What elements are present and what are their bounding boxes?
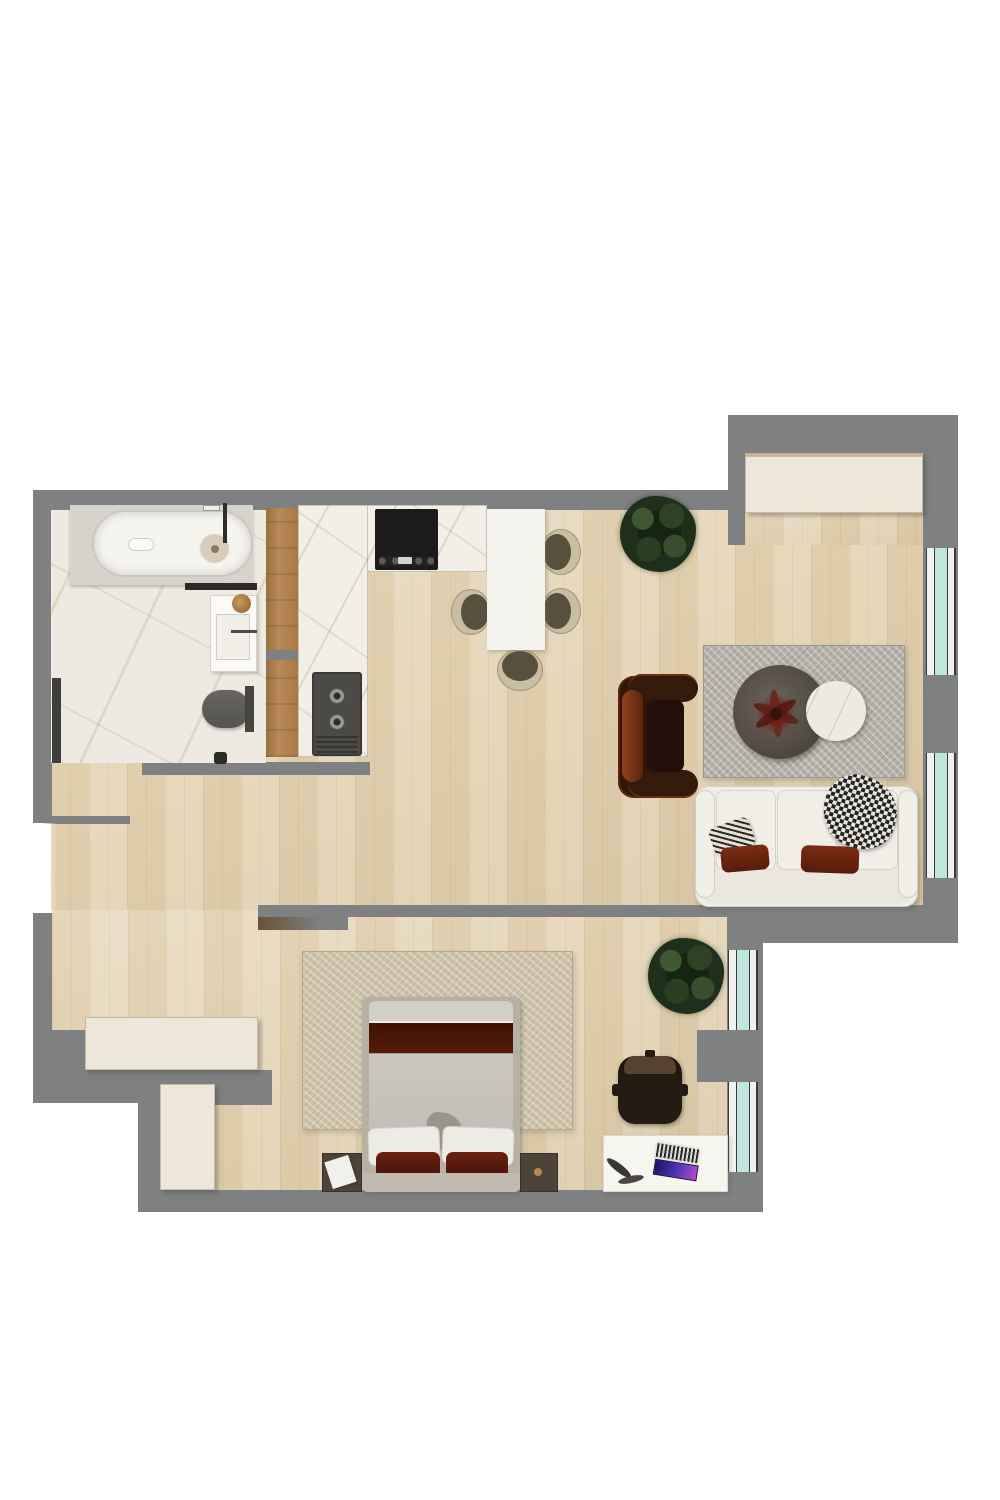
vessel-bowl [232,594,251,613]
desk-chair-top [624,1056,676,1074]
dining-chair-1-seat [543,534,571,570]
bedroom-window-lower [728,1082,758,1172]
bed-headboard [362,1173,520,1192]
rust-pillow-right [801,845,860,874]
wood-slat-partition [266,508,298,757]
bedroom-window-upper [728,950,758,1032]
wall-ac-block [697,1030,763,1082]
tub-faucet [223,503,227,543]
tub-drain-hole [211,545,219,553]
wardrobe-short [160,1084,215,1190]
desk-chair-arm-right [680,1084,688,1096]
bed-blanket-maroon [369,1023,513,1053]
wall-left-mid [33,913,52,1033]
sofa-arm-right [898,790,918,898]
wall-left-upper [33,490,52,823]
outside-bottom-left [33,1103,138,1213]
side-table-marble [806,681,866,741]
desk-chair-arm-left [612,1084,620,1096]
armchair-back-cushion [622,690,643,782]
vanity-faucet [231,630,257,633]
wall-divider-living-bedroom [258,905,742,917]
floor-plan [0,0,1000,1500]
dining-table [487,509,545,650]
dining-chair-3-seat [461,594,489,630]
wall-wardrobe-side [138,1103,162,1193]
flower-center [770,708,782,720]
sink-drain-2 [329,714,345,730]
cooktop-display [398,557,412,564]
wall-bath-kitchen-bottom [142,762,370,775]
white-sofa [695,786,918,907]
right-window-lower [926,753,956,878]
wall-bottom [138,1190,763,1212]
built-in-cabinet [745,453,923,513]
nightstand-knob [534,1168,542,1176]
floor-balcony-nook [745,513,923,545]
tub-soap [128,538,154,551]
wall-divider-end [258,917,348,930]
tub-faucet-bar [203,505,220,511]
dining-chair-4-seat [502,651,538,681]
sink-drain-1 [329,688,345,704]
dining-chair-2-seat [543,593,571,629]
rust-armchair [612,672,698,802]
right-window-upper [926,548,956,675]
desk-chair-headrest-tab [645,1050,655,1057]
entry-door-opening [35,823,57,913]
laptop [650,1141,701,1184]
toilet-tank [245,686,254,732]
bed-blanket-fold [369,1001,513,1023]
double-bed [362,997,520,1192]
rust-pillow-left [720,844,770,873]
outside-right-lower [763,943,1000,1213]
sink-grill [316,736,358,753]
vanity-basin [216,614,250,660]
vanity-shelf-edge [185,583,257,590]
shower-glass-strip [52,678,61,763]
armchair-seat [646,700,684,772]
partition-gap [266,650,298,660]
toilet-paper-holder [214,752,227,764]
wardrobe-long [85,1017,258,1070]
bathtub [92,510,253,577]
toilet [202,690,250,728]
flower-centerpiece [748,686,804,742]
